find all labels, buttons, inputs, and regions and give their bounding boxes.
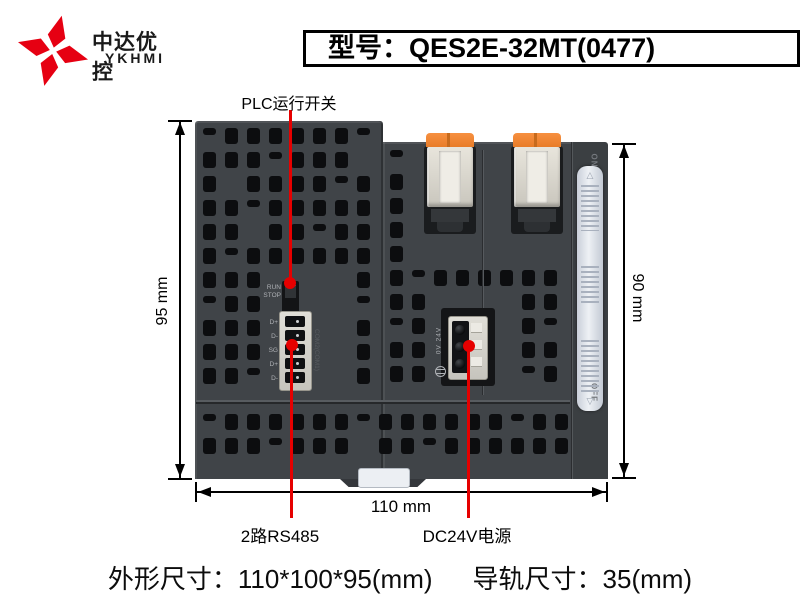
vent-slot <box>247 152 260 168</box>
vent-slot <box>522 366 535 373</box>
vent-slot <box>225 200 238 216</box>
clip-hook-right <box>518 209 556 222</box>
rs485-pin-label-1: D+ <box>258 316 278 330</box>
clip-tongue-left <box>439 151 461 203</box>
vent-slot <box>379 414 392 430</box>
vent-slot <box>269 200 282 216</box>
vent-slot <box>335 152 348 168</box>
vent-slot <box>335 224 348 240</box>
vent-slot <box>291 152 304 168</box>
vent-slot <box>313 248 326 264</box>
vent-slot <box>423 414 436 430</box>
vent-slot <box>445 438 458 454</box>
product-diagram: 中达优控 YKHMI 型号：QES2E-32MT(0477) PLC运行开关 O… <box>0 0 800 600</box>
vent-slot <box>489 414 502 430</box>
vent-slot <box>203 224 216 240</box>
rs485-hole-1 <box>285 316 305 327</box>
vent-slot <box>390 174 403 190</box>
slider-ridges-mid <box>581 266 599 306</box>
vent-slot <box>335 414 348 430</box>
vent-slot <box>335 176 348 183</box>
vent-slot <box>225 272 238 288</box>
slider-down-arrow-icon: ▽ <box>580 396 600 407</box>
on-label: ON <box>590 152 599 170</box>
vent-slot <box>412 366 425 382</box>
callout-run-switch-dot <box>284 277 296 289</box>
vent-slot <box>390 270 403 286</box>
slider-ridges-bottom <box>581 340 599 392</box>
vent-slot <box>313 200 326 216</box>
vent-slot <box>357 248 370 264</box>
vent-slot <box>291 176 304 192</box>
vent-slot <box>544 294 557 310</box>
rs485-pin-label-3: SG <box>258 344 278 358</box>
vent-slot <box>357 320 370 336</box>
vent-slot <box>522 294 535 310</box>
dim-bottom-cap-left <box>195 482 197 502</box>
vent-slot <box>390 198 403 214</box>
vent-slot <box>555 438 568 454</box>
callout-power-label: DC24V电源 <box>387 522 547 547</box>
vent-slot <box>390 150 403 157</box>
vent-slot <box>412 270 425 277</box>
vent-slot <box>445 414 458 430</box>
vent-slot <box>203 296 216 303</box>
power-pins-label: 0V 24V <box>436 313 445 369</box>
vent-slot <box>225 128 238 144</box>
clip-hook-tab-right <box>524 222 550 232</box>
vent-slot <box>313 414 326 430</box>
rs485-glint-5 <box>296 376 299 379</box>
clip-hook-tab-left <box>437 222 463 232</box>
vent-slot <box>247 414 260 430</box>
run-label: RUN <box>255 284 281 292</box>
clip-orange-cap-right <box>513 133 561 147</box>
vent-slot <box>390 318 403 325</box>
vent-slot <box>456 270 469 286</box>
vent-slot <box>555 414 568 430</box>
vent-slot <box>357 176 370 192</box>
vent-slot <box>247 200 260 207</box>
dim-bottom-cap-right <box>606 482 608 502</box>
vent-slot <box>313 438 326 454</box>
clip-hook-left <box>431 209 469 222</box>
brand-name-english: YKHMI <box>92 50 178 66</box>
callout-power-line <box>467 346 470 518</box>
vent-slot <box>511 438 524 454</box>
rs485-pin-label-4: D+ <box>258 358 278 372</box>
vent-slot <box>225 414 238 430</box>
vent-slot <box>269 176 282 192</box>
power-pin-3 <box>455 359 465 369</box>
vent-slot <box>225 320 238 336</box>
footer-outline-size: 外形尺寸：110*100*95(mm) <box>108 559 433 596</box>
vent-slot <box>533 438 546 454</box>
vent-slot <box>522 342 535 358</box>
vent-slot <box>335 438 348 454</box>
vent-slot <box>203 344 216 360</box>
vent-slot <box>247 248 260 264</box>
footer-rail-size: 导轨尺寸：35(mm) <box>473 559 693 596</box>
callout-rs485-line <box>290 345 293 518</box>
vent-slot <box>390 342 403 358</box>
footer-specs: 外形尺寸：110*100*95(mm) 导轨尺寸：35(mm) <box>0 559 800 596</box>
vent-slot <box>357 272 370 288</box>
vent-slot <box>203 152 216 168</box>
callout-rs485-label: 2路RS485 <box>200 522 360 547</box>
body-ridge <box>196 400 570 402</box>
vent-slot <box>357 296 370 303</box>
vent-slot <box>489 438 502 454</box>
vent-slot <box>269 128 282 144</box>
clip-orange-cap-left <box>426 133 474 147</box>
vent-slot <box>423 438 436 445</box>
dim-left-arrow-up <box>175 122 185 135</box>
vent-slot <box>434 270 447 286</box>
ground-symbol-icon <box>435 366 446 377</box>
vent-slot <box>511 414 524 421</box>
callout-run-switch-label: PLC运行开关 <box>189 90 389 114</box>
dim-right-arrow-up <box>619 145 629 158</box>
vent-slot <box>203 128 216 135</box>
vent-slot <box>357 128 370 135</box>
vent-slot <box>225 248 238 255</box>
vent-slot <box>357 368 370 384</box>
vent-slot <box>335 128 348 144</box>
vent-slot <box>203 248 216 264</box>
dim-right-cap-bottom <box>612 477 636 479</box>
vent-slot <box>203 320 216 336</box>
vent-slot <box>313 152 326 168</box>
vent-slot <box>269 438 282 445</box>
vent-slot <box>522 270 535 286</box>
rs485-glint-2 <box>296 334 299 337</box>
vent-slot <box>500 270 513 286</box>
power-notch-3 <box>471 357 482 367</box>
dim-left-line <box>179 121 181 479</box>
rs485-glint-1 <box>296 320 299 323</box>
dim-left-cap-bottom <box>168 478 192 480</box>
vent-slot <box>225 438 238 454</box>
rs485-com-label: COM2(COM1) <box>312 320 320 380</box>
vent-slot <box>412 294 425 310</box>
vent-slot <box>357 414 370 421</box>
rs485-pin-label-5: D- <box>258 372 278 386</box>
dim-bottom-arrow-left <box>198 487 211 497</box>
vent-slot <box>533 414 546 430</box>
vent-slot <box>401 414 414 430</box>
vent-slot <box>225 224 238 240</box>
callout-rs485-dot <box>286 339 298 351</box>
vent-slot <box>247 438 260 454</box>
vent-slot <box>390 294 403 310</box>
vent-slot <box>390 246 403 262</box>
clip-cap-gap-right <box>534 133 537 147</box>
dim-bottom-arrow-right <box>592 487 605 497</box>
rs485-hole-4 <box>285 358 305 369</box>
vent-slot <box>412 342 425 358</box>
vent-slot <box>269 152 282 159</box>
vent-slot <box>269 224 282 240</box>
vent-slot <box>390 366 403 382</box>
vent-slot <box>203 414 216 421</box>
callout-run-switch-line <box>289 110 292 283</box>
vent-slot <box>203 200 216 216</box>
dim-right-arrow-down <box>619 463 629 476</box>
vent-slot <box>357 344 370 360</box>
vent-slot <box>522 318 535 334</box>
rs485-hole-5 <box>285 372 305 383</box>
vent-slot <box>269 248 282 264</box>
vent-slot <box>335 200 348 216</box>
dim-left-text: 95 mm <box>154 271 172 331</box>
vent-slot <box>225 344 238 360</box>
callout-power-dot <box>463 340 475 352</box>
vent-slot <box>544 270 557 286</box>
vent-slot <box>225 368 238 384</box>
vent-slot <box>225 152 238 168</box>
rs485-pin-label-2: D- <box>258 330 278 344</box>
vent-slot <box>544 366 557 382</box>
vent-slot <box>412 318 425 334</box>
power-pin-1 <box>455 325 465 335</box>
vent-slot <box>225 296 238 312</box>
vent-slot <box>247 128 260 144</box>
vent-slot <box>379 438 392 454</box>
vent-slot <box>357 224 370 240</box>
stop-label: STOP <box>255 292 281 300</box>
vent-slot <box>269 414 282 430</box>
dim-left-arrow-down <box>175 464 185 477</box>
dim-right-text: 90 mm <box>628 268 646 328</box>
dim-bottom-line <box>196 491 607 493</box>
vent-slot <box>313 128 326 144</box>
clip-tongue-right <box>526 151 548 203</box>
vent-slot <box>313 224 326 231</box>
vent-slot <box>247 176 260 192</box>
vent-slot <box>478 270 491 286</box>
slider-ridges-top <box>581 185 599 231</box>
vent-slot <box>313 176 326 192</box>
clip-cap-gap-left <box>447 133 450 147</box>
vent-slot <box>203 176 216 192</box>
dim-right-line <box>623 144 625 478</box>
vent-slot <box>291 128 304 144</box>
vent-slot <box>291 200 304 216</box>
vent-slot <box>390 222 403 238</box>
dim-bottom-text: 110 mm <box>321 497 481 517</box>
vent-slot <box>357 200 370 216</box>
din-rail-clip <box>358 468 410 488</box>
brand-logo-icon <box>12 8 94 92</box>
vent-slot <box>544 318 557 325</box>
rs485-glint-4 <box>296 362 299 365</box>
vent-slot <box>203 368 216 384</box>
vent-slot <box>401 438 414 454</box>
vent-slot <box>291 224 304 240</box>
slider-up-arrow-icon: △ <box>580 170 600 181</box>
vent-slot <box>203 272 216 288</box>
model-title: 型号：QES2E-32MT(0477) <box>303 30 800 67</box>
vent-slot <box>291 248 304 264</box>
vent-slot <box>544 342 557 358</box>
vent-slot <box>203 438 216 454</box>
vent-slot <box>335 248 348 264</box>
power-notch-1 <box>471 323 482 333</box>
